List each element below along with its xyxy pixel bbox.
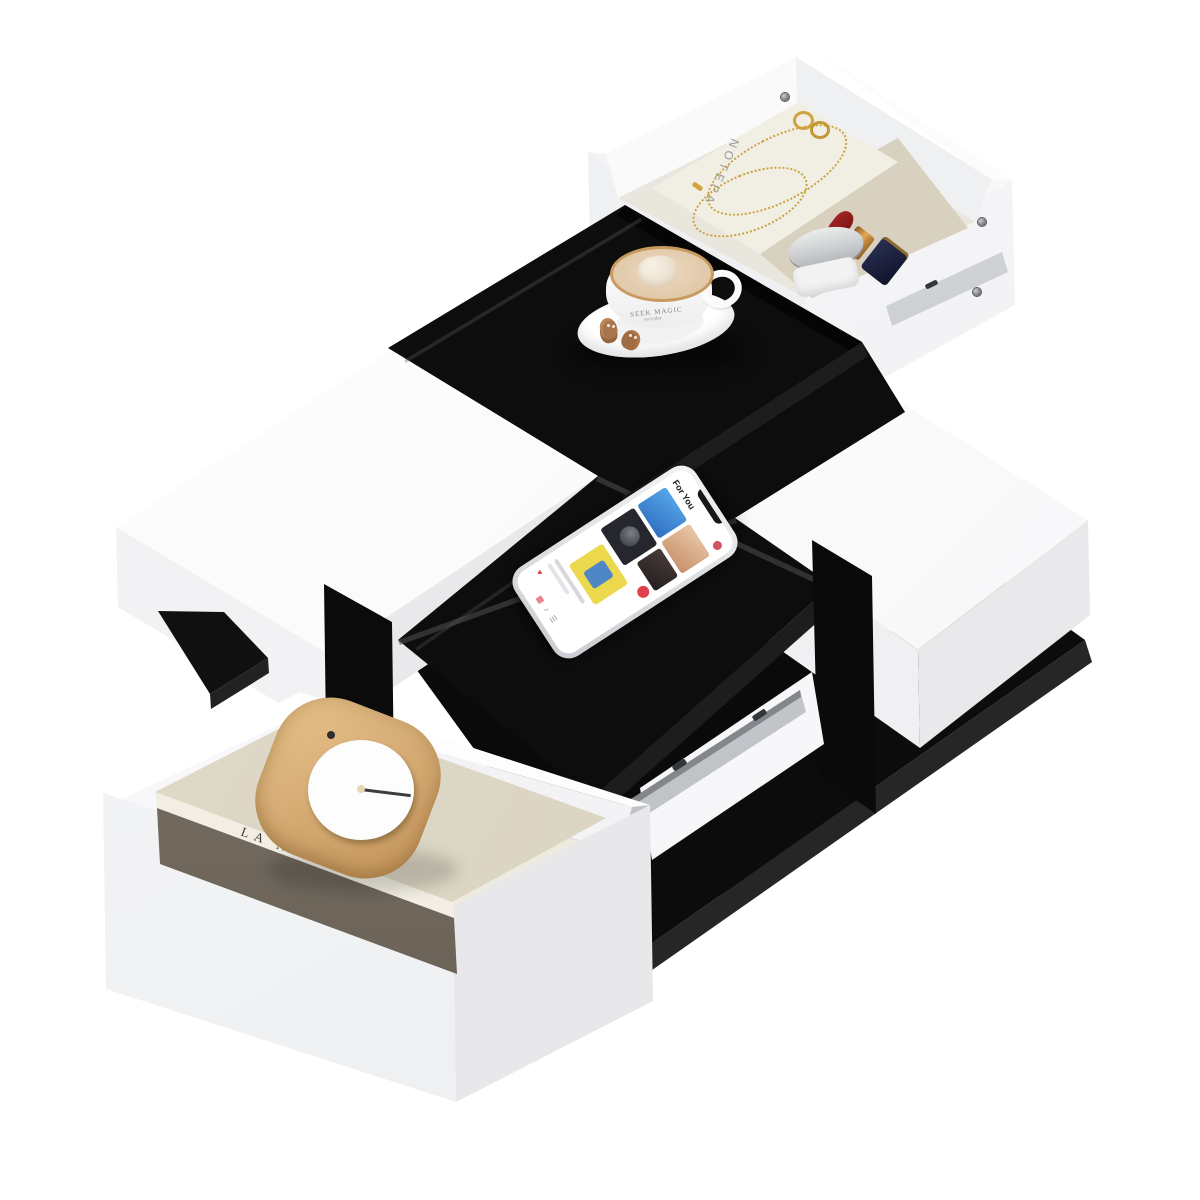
screw-icon <box>781 93 789 101</box>
clock-marker-dot <box>327 731 335 739</box>
cookie-icing-dots <box>607 324 610 327</box>
phone-avatar-dot <box>711 539 723 551</box>
gold-ring-2 <box>810 121 830 139</box>
play-badge <box>635 584 652 601</box>
product-image: NOTEPA THE THE KINFOLK LA NONNA <box>0 0 1200 1200</box>
screw-icon <box>973 288 981 296</box>
clock-hub <box>357 785 365 793</box>
heart-glyph: ♥ <box>534 568 544 577</box>
screw-icon <box>978 218 986 226</box>
tab-library-icon: ☰ <box>547 614 562 630</box>
